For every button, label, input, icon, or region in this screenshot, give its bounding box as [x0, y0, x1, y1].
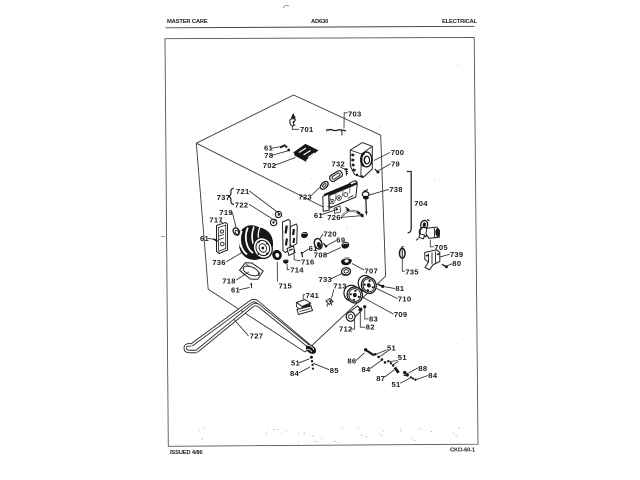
svg-text:708: 708: [314, 251, 328, 260]
svg-text:705: 705: [434, 243, 448, 252]
svg-text:738: 738: [389, 185, 403, 194]
svg-text:736: 736: [212, 258, 226, 267]
svg-text:727: 727: [250, 332, 264, 341]
svg-text:ISSUED 4/86: ISSUED 4/86: [170, 450, 203, 456]
svg-text:714: 714: [290, 266, 304, 275]
svg-text:85: 85: [330, 366, 340, 375]
svg-text:721: 721: [236, 187, 250, 196]
svg-text:84: 84: [428, 371, 438, 380]
svg-text:701: 701: [300, 125, 314, 134]
svg-text:79: 79: [391, 159, 400, 168]
svg-text:707: 707: [365, 266, 379, 275]
svg-text:51: 51: [387, 343, 397, 352]
svg-text:739: 739: [450, 250, 464, 259]
svg-text:712: 712: [339, 325, 353, 334]
svg-text:709: 709: [394, 310, 408, 319]
svg-text:715: 715: [279, 282, 293, 291]
svg-text:AD630: AD630: [311, 19, 328, 25]
svg-text:732: 732: [332, 159, 346, 168]
svg-text:710: 710: [398, 294, 412, 303]
svg-text:704: 704: [414, 199, 428, 208]
svg-text:713: 713: [333, 282, 347, 291]
svg-text:702: 702: [263, 161, 277, 170]
svg-text:78: 78: [264, 151, 273, 160]
svg-text:726: 726: [327, 213, 341, 222]
svg-text:81: 81: [395, 284, 405, 293]
svg-text:723: 723: [299, 193, 313, 202]
svg-text:735: 735: [405, 268, 419, 277]
svg-text:720: 720: [323, 230, 337, 239]
svg-text:CKO-60-1: CKO-60-1: [450, 448, 476, 454]
svg-text:51: 51: [291, 359, 301, 368]
svg-text:88: 88: [418, 364, 427, 373]
svg-text:80: 80: [452, 259, 461, 268]
svg-text:722: 722: [235, 201, 249, 210]
svg-text:84: 84: [362, 365, 372, 374]
svg-text:51: 51: [392, 380, 402, 389]
svg-text:717: 717: [209, 216, 223, 225]
svg-text:703: 703: [348, 110, 362, 119]
svg-text:700: 700: [391, 148, 405, 157]
svg-text:61: 61: [231, 286, 241, 295]
svg-text:84: 84: [290, 369, 300, 378]
svg-text:69: 69: [336, 236, 345, 245]
svg-text:718: 718: [222, 277, 236, 286]
svg-text:MASTER CARE: MASTER CARE: [167, 19, 208, 25]
svg-text:733: 733: [319, 275, 333, 284]
svg-text:61: 61: [314, 211, 324, 220]
svg-text:86: 86: [347, 357, 356, 366]
svg-text:61: 61: [200, 234, 210, 243]
svg-text:82: 82: [366, 322, 375, 331]
svg-text:87: 87: [376, 374, 385, 383]
svg-text:737: 737: [217, 193, 231, 202]
svg-text:51: 51: [398, 353, 408, 362]
svg-text:ELECTRICAL: ELECTRICAL: [442, 19, 478, 25]
svg-text:741: 741: [306, 291, 320, 300]
